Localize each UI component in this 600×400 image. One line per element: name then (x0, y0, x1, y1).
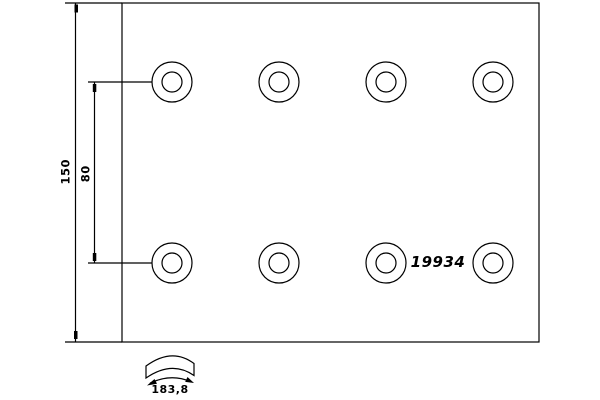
part-number: 19934 (406, 255, 470, 270)
rivet-hole (473, 62, 513, 102)
technical-drawing-canvas: 150 80 19934 183,8 (0, 0, 600, 400)
rivet-hole-outer (366, 62, 406, 102)
dimension-hole-spacing (88, 82, 152, 263)
rivet-hole-outer (152, 243, 192, 283)
rivet-hole-inner (376, 253, 396, 273)
rivet-hole-inner (269, 72, 289, 92)
rivet-hole-inner (269, 253, 289, 273)
rivet-hole-outer (473, 62, 513, 102)
dimension-tick (93, 84, 97, 92)
rivet-hole-inner (483, 253, 503, 273)
rivet-hole (259, 62, 299, 102)
lining-outline (122, 3, 539, 342)
lining-profile-section (146, 356, 194, 378)
rivet-hole-inner (162, 253, 182, 273)
dimension-tick (75, 5, 79, 13)
dimension-tick (93, 253, 97, 261)
rivet-hole-outer (152, 62, 192, 102)
drawing-geometry (0, 0, 600, 400)
rivet-hole-outer (259, 62, 299, 102)
rivet-hole-inner (162, 72, 182, 92)
dimension-label-hole-spacing: 80 (80, 156, 92, 192)
dimension-height (65, 3, 122, 342)
rivet-hole (152, 243, 192, 283)
rivet-hole-inner (483, 72, 503, 92)
dimension-tick (74, 331, 78, 339)
rivet-hole (259, 243, 299, 283)
rivet-hole-outer (473, 243, 513, 283)
rivet-hole (152, 62, 192, 102)
rivet-hole (473, 243, 513, 283)
dimension-label-height: 150 (60, 154, 72, 190)
rivet-hole-outer (366, 243, 406, 283)
rivet-hole-outer (259, 243, 299, 283)
rivet-hole (366, 243, 406, 283)
rivet-hole (366, 62, 406, 102)
rivet-hole-inner (376, 72, 396, 92)
dimension-label-arc-width: 183,8 (138, 384, 202, 395)
